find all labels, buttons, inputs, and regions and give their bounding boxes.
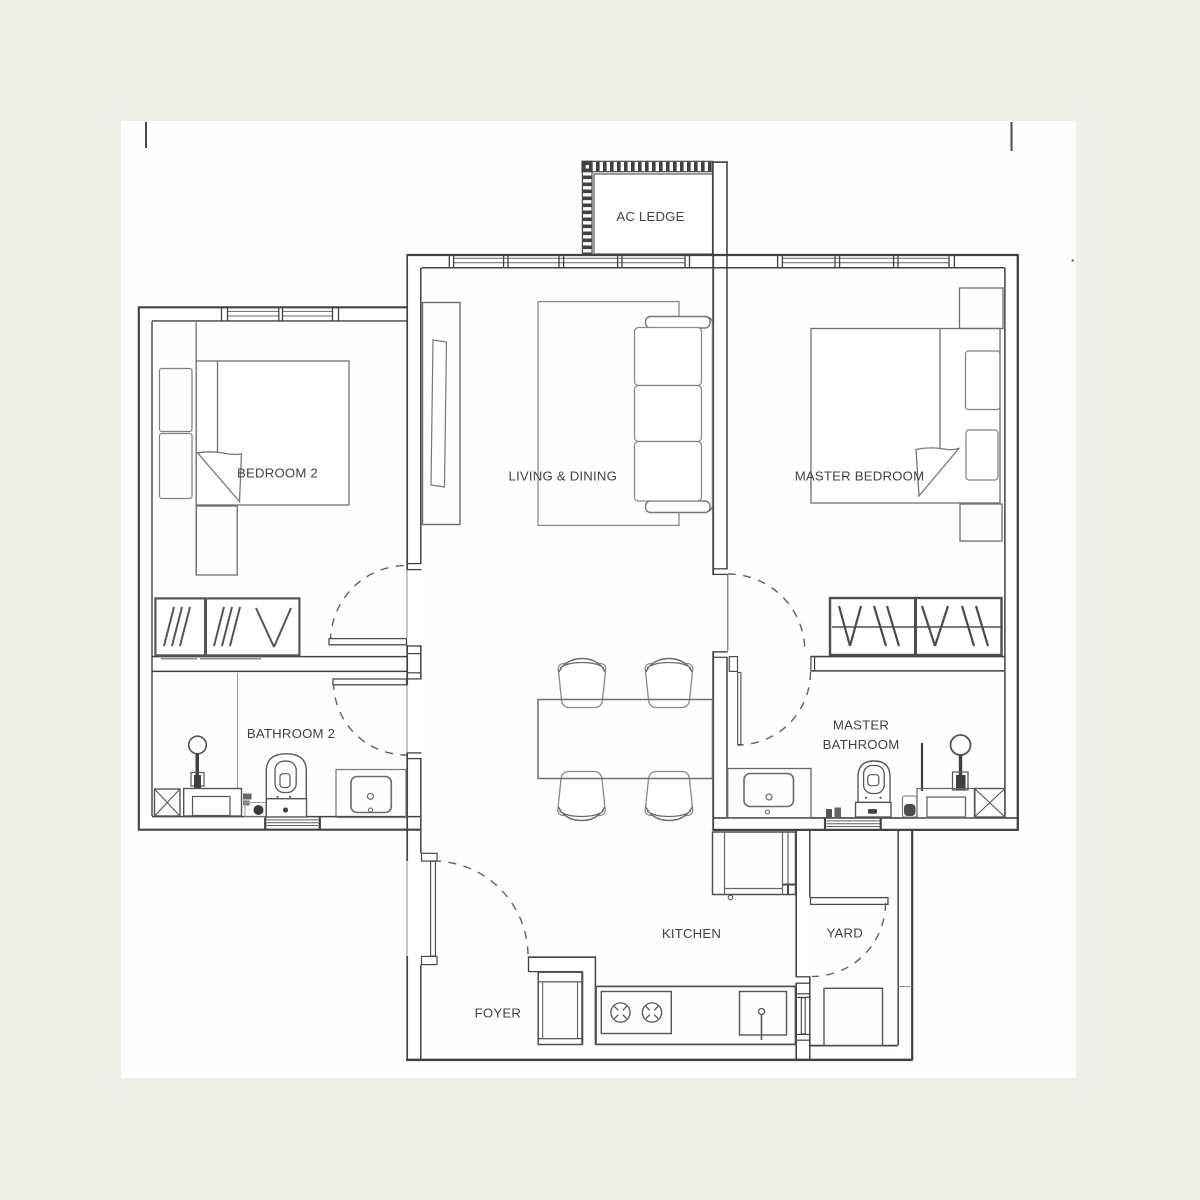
svg-text:BEDROOM 2: BEDROOM 2 xyxy=(237,465,318,480)
svg-text:AC LEDGE: AC LEDGE xyxy=(616,209,684,224)
svg-text:YARD: YARD xyxy=(826,926,862,941)
svg-text:BATHROOM: BATHROOM xyxy=(823,737,900,752)
svg-text:FOYER: FOYER xyxy=(475,1005,521,1020)
svg-text:MASTER BEDROOM: MASTER BEDROOM xyxy=(795,468,925,483)
svg-text:LIVING & DINING: LIVING & DINING xyxy=(509,469,618,484)
svg-text:KITCHEN: KITCHEN xyxy=(662,926,721,941)
svg-text:BATHROOM 2: BATHROOM 2 xyxy=(247,726,335,741)
svg-text:MASTER: MASTER xyxy=(833,718,889,733)
